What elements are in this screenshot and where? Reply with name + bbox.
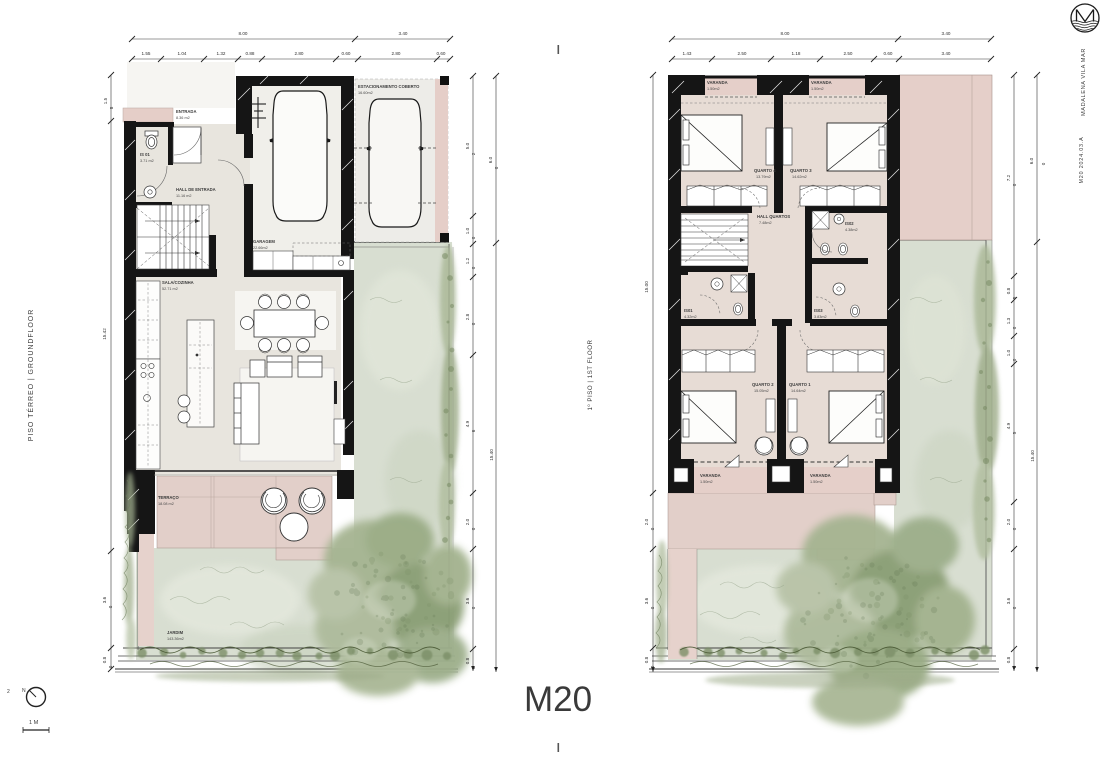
svg-text:0: 0 bbox=[1012, 358, 1017, 361]
svg-text:VARANDA: VARANDA bbox=[811, 80, 832, 85]
svg-text:15.40: 15.40 bbox=[1030, 450, 1035, 462]
svg-text:M20 2024.03.A: M20 2024.03.A bbox=[1079, 137, 1085, 184]
svg-text:0: 0 bbox=[108, 665, 113, 668]
svg-text:0: 0 bbox=[494, 166, 499, 169]
svg-text:1.3: 1.3 bbox=[1006, 317, 1011, 324]
svg-text:0: 0 bbox=[108, 605, 113, 608]
svg-text:IS02: IS02 bbox=[845, 221, 854, 226]
svg-text:1.43: 1.43 bbox=[683, 51, 692, 56]
svg-text:GARAGEM: GARAGEM bbox=[253, 239, 275, 244]
svg-text:2: 2 bbox=[7, 689, 10, 695]
svg-text:5: 5 bbox=[1012, 296, 1017, 299]
svg-text:1 M: 1 M bbox=[29, 720, 39, 726]
svg-text:0.8: 0.8 bbox=[102, 656, 107, 663]
svg-text:VARANDA: VARANDA bbox=[700, 473, 721, 478]
svg-text:0.8: 0.8 bbox=[465, 657, 470, 664]
svg-text:1.55: 1.55 bbox=[142, 51, 151, 56]
svg-text:0.60: 0.60 bbox=[437, 51, 446, 56]
svg-text:0.8: 0.8 bbox=[644, 656, 649, 663]
svg-text:8.00: 8.00 bbox=[781, 31, 790, 36]
svg-text:0: 0 bbox=[650, 665, 655, 668]
svg-text:3.6: 3.6 bbox=[102, 596, 107, 603]
svg-text:SALA/COZINHA: SALA/COZINHA bbox=[162, 280, 194, 285]
svg-text:ESTACIONAMENTO COBERTO: ESTACIONAMENTO COBERTO bbox=[358, 84, 420, 89]
svg-text:PISO TÉRREO | GROUNDFLOOR: PISO TÉRREO | GROUNDFLOOR bbox=[26, 309, 35, 441]
svg-text:0: 0 bbox=[1012, 183, 1017, 186]
svg-text:15.42: 15.42 bbox=[102, 328, 107, 340]
svg-text:MADALENA VILA MAR: MADALENA VILA MAR bbox=[1081, 48, 1087, 116]
svg-text:1.50m2: 1.50m2 bbox=[700, 480, 713, 484]
svg-text:2.0: 2.0 bbox=[644, 518, 649, 525]
svg-text:0: 0 bbox=[650, 527, 655, 530]
svg-text:15.00: 15.00 bbox=[644, 281, 649, 293]
svg-text:TERRAÇO: TERRAÇO bbox=[158, 495, 179, 500]
svg-text:3.6: 3.6 bbox=[465, 597, 470, 604]
svg-text:1.04: 1.04 bbox=[178, 51, 187, 56]
svg-text:1.2: 1.2 bbox=[465, 257, 470, 264]
svg-text:22.66m2: 22.66m2 bbox=[253, 246, 268, 250]
svg-text:0.88: 0.88 bbox=[246, 51, 255, 56]
svg-text:IS 01: IS 01 bbox=[140, 152, 150, 157]
svg-text:14.64m2: 14.64m2 bbox=[791, 389, 806, 393]
svg-text:2.50: 2.50 bbox=[738, 51, 747, 56]
svg-text:0.60: 0.60 bbox=[884, 51, 893, 56]
svg-text:0: 0 bbox=[1012, 527, 1017, 530]
svg-text:5.0: 5.0 bbox=[465, 142, 470, 149]
svg-text:0: 0 bbox=[471, 666, 476, 669]
svg-text:8.00: 8.00 bbox=[239, 31, 248, 36]
svg-text:6.0: 6.0 bbox=[488, 156, 493, 163]
svg-text:1.50m2: 1.50m2 bbox=[810, 480, 823, 484]
svg-text:2.50: 2.50 bbox=[844, 51, 853, 56]
svg-text:7.2: 7.2 bbox=[1006, 174, 1011, 181]
svg-text:0: 0 bbox=[1012, 326, 1017, 329]
svg-text:13.79m2: 13.79m2 bbox=[756, 175, 771, 179]
svg-text:1.32: 1.32 bbox=[217, 51, 226, 56]
svg-text:11.16 m2: 11.16 m2 bbox=[176, 194, 192, 198]
svg-text:1.0: 1.0 bbox=[1006, 349, 1011, 356]
svg-text:M20: M20 bbox=[524, 680, 592, 719]
svg-text:3.6: 3.6 bbox=[644, 597, 649, 604]
svg-text:18.08 m2: 18.08 m2 bbox=[158, 502, 174, 506]
svg-text:1.50m2: 1.50m2 bbox=[811, 87, 824, 91]
svg-text:3.40: 3.40 bbox=[942, 31, 951, 36]
svg-text:16.60m2: 16.60m2 bbox=[358, 91, 373, 95]
svg-text:0: 0 bbox=[1012, 665, 1017, 668]
svg-text:QUARTO 1: QUARTO 1 bbox=[789, 382, 811, 387]
svg-text:3.71 m2: 3.71 m2 bbox=[140, 159, 154, 163]
svg-text:15.05m2: 15.05m2 bbox=[754, 389, 769, 393]
svg-text:2.0: 2.0 bbox=[465, 518, 470, 525]
svg-text:3.6: 3.6 bbox=[1006, 597, 1011, 604]
svg-text:0: 0 bbox=[471, 236, 476, 239]
svg-text:0.8: 0.8 bbox=[1006, 656, 1011, 663]
svg-text:0: 0 bbox=[1041, 162, 1046, 165]
svg-text:0: 0 bbox=[471, 322, 476, 325]
svg-text:1.5: 1.5 bbox=[103, 97, 108, 104]
svg-text:IS03: IS03 bbox=[814, 308, 823, 313]
svg-text:VARANDA: VARANDA bbox=[707, 80, 728, 85]
svg-text:3.83m2: 3.83m2 bbox=[814, 315, 827, 319]
svg-text:4.32m2: 4.32m2 bbox=[684, 315, 697, 319]
svg-text:4.38m2: 4.38m2 bbox=[845, 228, 858, 232]
svg-text:0.60: 0.60 bbox=[342, 51, 351, 56]
svg-text:1.0: 1.0 bbox=[465, 227, 470, 234]
svg-text:2.80: 2.80 bbox=[295, 51, 304, 56]
svg-text:14.62m2: 14.62m2 bbox=[792, 175, 807, 179]
svg-text:8.36 m2: 8.36 m2 bbox=[176, 116, 190, 120]
svg-text:0: 0 bbox=[471, 266, 476, 269]
svg-text:6.0: 6.0 bbox=[1029, 157, 1034, 164]
svg-text:2: 2 bbox=[471, 152, 476, 155]
svg-text:QUARTO 4: QUARTO 4 bbox=[754, 168, 776, 173]
svg-text:0: 0 bbox=[471, 527, 476, 530]
svg-text:HALL QUARTOS: HALL QUARTOS bbox=[757, 214, 790, 219]
svg-text:2.80: 2.80 bbox=[392, 51, 401, 56]
svg-text:1º PISO | 1ST FLOOR: 1º PISO | 1ST FLOOR bbox=[587, 339, 594, 410]
svg-text:IS01: IS01 bbox=[684, 308, 693, 313]
svg-text:7.48m2: 7.48m2 bbox=[759, 221, 772, 225]
svg-text:6: 6 bbox=[471, 429, 476, 432]
svg-text:1.18: 1.18 bbox=[792, 51, 801, 56]
svg-text:3.40: 3.40 bbox=[942, 51, 951, 56]
svg-text:52.71 m2: 52.71 m2 bbox=[162, 287, 178, 291]
svg-text:QUARTO 3: QUARTO 3 bbox=[790, 168, 812, 173]
svg-text:2.8: 2.8 bbox=[465, 313, 470, 320]
svg-text:0.8: 0.8 bbox=[1006, 287, 1011, 294]
svg-text:N: N bbox=[22, 688, 26, 694]
svg-text:JARDIM: JARDIM bbox=[167, 630, 184, 635]
svg-text:0: 0 bbox=[650, 606, 655, 609]
svg-text:0: 0 bbox=[471, 606, 476, 609]
svg-text:ENTRADA: ENTRADA bbox=[176, 109, 196, 114]
svg-text:2.0: 2.0 bbox=[1006, 518, 1011, 525]
svg-text:0: 0 bbox=[1012, 606, 1017, 609]
svg-text:1.50m2: 1.50m2 bbox=[707, 87, 720, 91]
svg-text:4.9: 4.9 bbox=[1006, 422, 1011, 429]
svg-text:8: 8 bbox=[109, 106, 114, 109]
svg-text:QUARTO 2: QUARTO 2 bbox=[752, 382, 774, 387]
svg-text:4.9: 4.9 bbox=[465, 420, 470, 427]
svg-text:143.36m2: 143.36m2 bbox=[167, 637, 184, 641]
svg-text:15.40: 15.40 bbox=[489, 449, 494, 461]
svg-text:HALL DE ENTRADA: HALL DE ENTRADA bbox=[176, 187, 216, 192]
svg-text:VARANDA: VARANDA bbox=[810, 473, 831, 478]
svg-text:5: 5 bbox=[1012, 431, 1017, 434]
svg-text:3.40: 3.40 bbox=[399, 31, 408, 36]
